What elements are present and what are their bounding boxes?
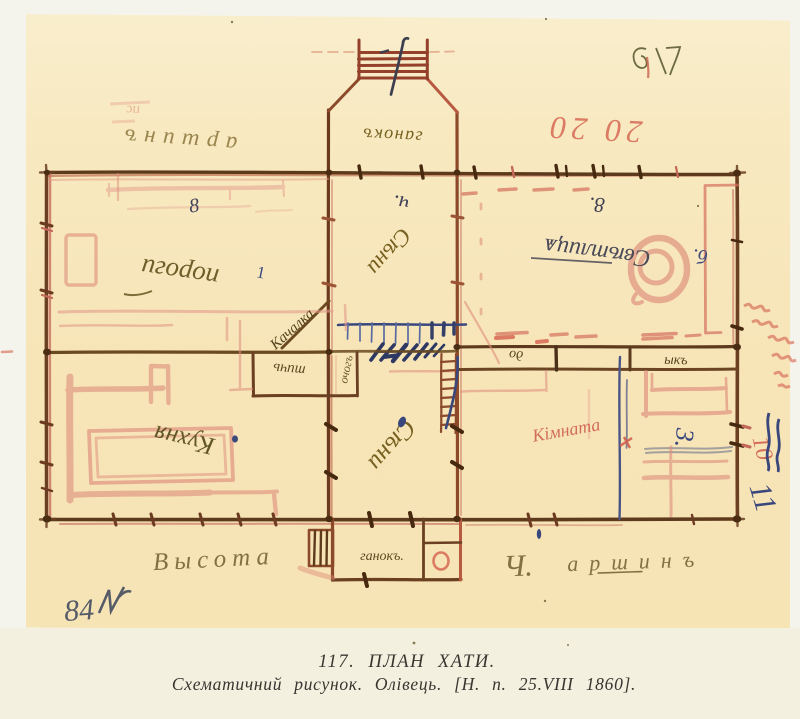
svg-text:ганокъ.: ганокъ. [360,549,404,564]
svg-text:ыкъ: ыкъ [664,353,688,369]
svg-text:ганокъ: ганокъ [361,124,423,147]
svg-text:ч.: ч. [392,190,410,216]
svg-text:84: 84 [63,593,95,628]
svg-text:8.: 8. [589,193,606,218]
svg-text:тичь: тичь [272,360,306,379]
svg-text:Схематичний рисунок. Олівець.: Схематичний рисунок. Олівець. [Н. п. 25.… [172,674,636,694]
svg-text:3.: 3. [669,426,700,449]
svg-text:117. ПЛАН ХАТИ.: 117. ПЛАН ХАТИ. [318,652,495,672]
svg-text:Ч.: Ч. [503,547,533,583]
svg-text:до: до [509,347,524,363]
svg-text:20 20: 20 20 [545,109,644,150]
svg-text:б.: б. [692,244,709,267]
